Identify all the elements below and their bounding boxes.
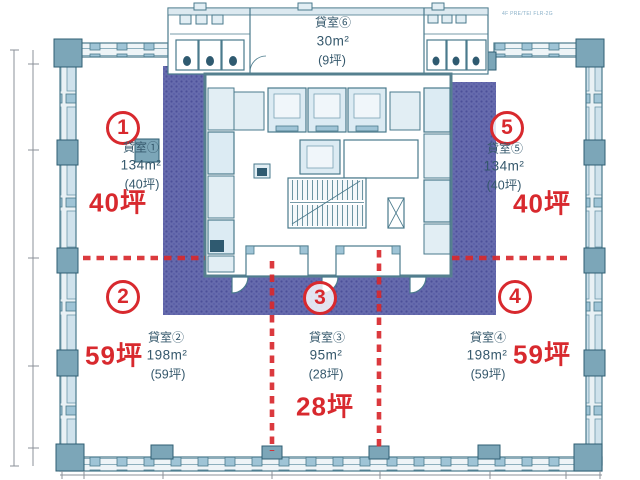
room-4-number: 4 (509, 285, 521, 309)
room-3-area-m2: 95m² (310, 348, 343, 363)
room-4-area-tsubo: (59坪) (471, 364, 506, 383)
room-5-area-m2: 134m² (484, 159, 525, 174)
room-1-name: 貸室① (123, 139, 159, 156)
plan-annotation: 4F PRE/TEI FLR-2G (502, 11, 553, 17)
room-5-name: 貸室⑤ (487, 140, 523, 157)
room-2-circle-number: 2 (106, 280, 140, 314)
room-6-area-m2: 30m² (317, 34, 350, 49)
room-3-name: 貸室③ (309, 329, 345, 346)
room-2-area-m2: 198m² (147, 348, 188, 363)
room-4-big-area: 59坪 (513, 335, 571, 372)
room-4-area-m2: 198m² (467, 348, 508, 363)
floor-plan: 1 2 3 4 5 貸室① 134m² (40坪) 40坪 貸室② 198m² … (0, 0, 640, 480)
room-6-area-tsubo: (9坪) (318, 50, 346, 69)
room-5-big-area: 40坪 (513, 184, 571, 221)
room-2-number: 2 (117, 285, 129, 309)
room-2-name: 貸室② (148, 329, 184, 346)
room-5-number: 5 (501, 116, 513, 140)
room-3-number: 3 (314, 286, 326, 310)
room-1-number: 1 (117, 116, 129, 140)
room-2-big-area: 59坪 (85, 336, 143, 373)
room-1-big-area: 40坪 (89, 183, 147, 220)
room-3-big-area: 28坪 (296, 387, 354, 424)
room-3-area-tsubo: (28坪) (309, 364, 344, 383)
room-4-circle-number: 4 (498, 280, 532, 314)
room-3-circle-number: 3 (303, 281, 337, 315)
core (205, 74, 451, 293)
shaft-x (388, 198, 404, 228)
room-4-name: 貸室④ (470, 329, 506, 346)
room-6-name: 貸室⑥ (315, 14, 351, 31)
room-2-area-tsubo: (59坪) (151, 364, 186, 383)
stairs (288, 178, 366, 228)
room-1-area-m2: 134m² (121, 158, 162, 173)
